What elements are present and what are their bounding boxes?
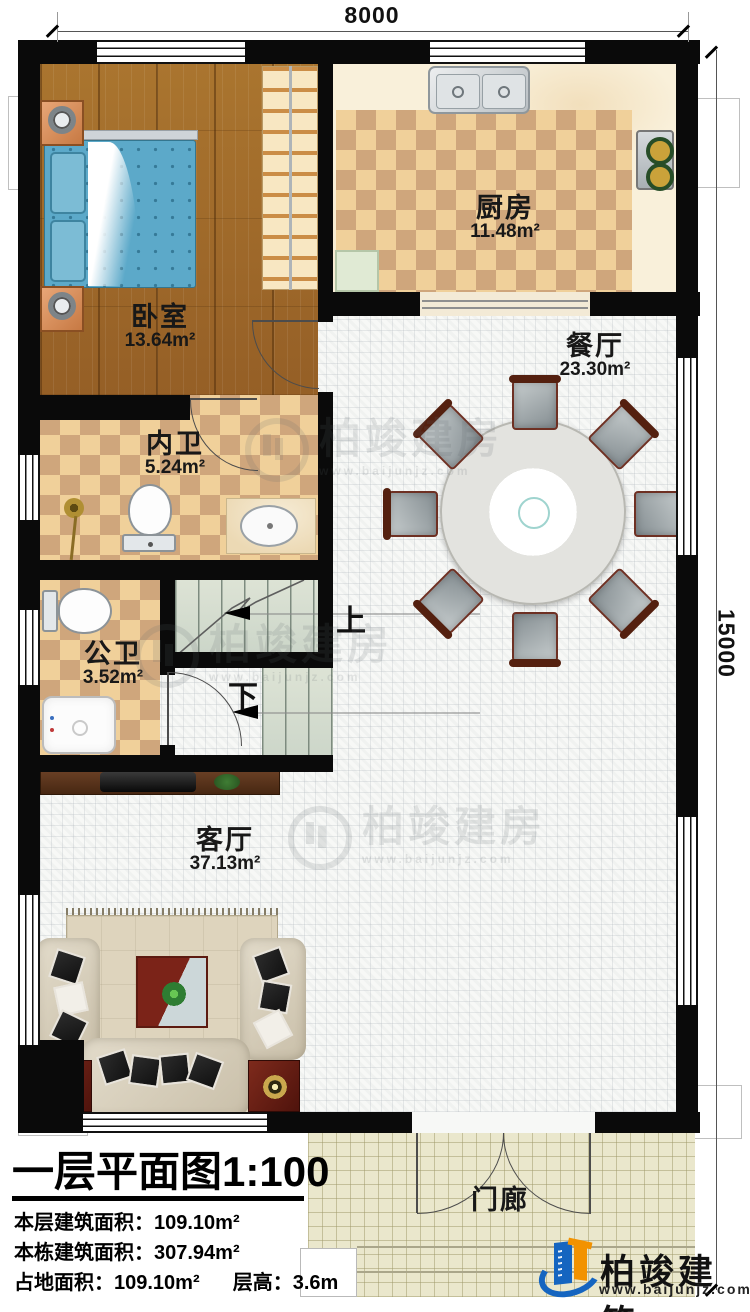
stat-value: 3.6m [293,1272,339,1294]
toilet-bowl [58,588,112,634]
room-area: 37.13m² [150,854,300,874]
nightstand-lamp [48,106,76,134]
wardrobe-rail [289,66,292,290]
wall-bath-dining [318,392,333,655]
coffee-table [136,956,208,1028]
room-name: 厨房 [430,194,580,222]
stat-value: 109.10m² [154,1212,240,1234]
stair-break-line [172,576,338,660]
dining-chair [512,612,558,662]
sofa-pillow [128,1054,162,1088]
rug-fringe [66,908,278,915]
side-table [248,1060,300,1112]
stat-label: 本层建筑面积： [14,1212,154,1234]
dining-window [676,358,698,555]
stat-label: 本栋建筑面积： [14,1242,154,1264]
stair-down-arrow-line [246,712,480,714]
nightstand-lamp [48,292,76,320]
stat-label: 层高： [233,1272,293,1294]
tv-decor-plant [214,774,240,790]
dining-chair [388,491,438,537]
room-area: 13.64m² [85,331,235,351]
dining-chair [512,380,558,430]
toilet-tank [42,590,58,632]
stat-value: 307.94m² [154,1242,240,1264]
inner-bath-window [18,455,40,520]
stat-building-area: 本栋建筑面积：307.94m² [14,1236,240,1265]
room-name: 餐厅 [520,332,670,360]
kitchen-cabinet [335,250,379,292]
room-name: 内卫 [100,430,250,458]
toilet-bowl [128,484,172,536]
dim-line-top [57,31,688,32]
bedroom-window [97,40,245,64]
sofa-pillow [258,980,293,1015]
room-area: 11.48m² [430,222,580,242]
room-name: 公卫 [38,640,188,668]
room-area: 3.52m² [38,668,188,688]
brand-name: 柏竣建筑 [600,1244,750,1312]
living-window-east [676,817,698,1005]
room-label-kitchen: 厨房 11.48m² [430,194,580,242]
public-bath-window [18,610,40,685]
floor-plan-canvas: 上 下 [0,0,750,1312]
wall-stair-south [18,755,333,772]
entry-opening [412,1112,595,1133]
room-area: 5.24m² [100,458,250,478]
plan-title-text: 一层平面图 [12,1148,222,1195]
toilet-tank [122,534,176,552]
tv [100,772,196,792]
dim-height-label: 15000 [713,594,740,694]
bath-sink [240,505,298,547]
washing-machine [42,696,116,754]
living-window-south [83,1112,267,1133]
wall-corner-pier [18,1040,84,1133]
stat-value: 109.10m² [114,1272,200,1294]
room-label-inner-bath: 内卫 5.24m² [100,430,250,478]
room-area: 23.30m² [520,360,670,380]
brand-url: www.baijunjz.com [599,1281,750,1297]
stat-label: 占地面积： [14,1272,114,1294]
plan-title: 一层平面图1:100 [12,1138,329,1199]
wall-bath-divider [18,560,333,580]
room-label-public-bath: 公卫 3.52m² [38,640,188,688]
room-name: 卧室 [85,303,235,331]
room-label-porch: 门廊 [430,1186,570,1214]
room-label-living: 客厅 37.13m² [150,826,300,874]
stair-up-label: 上 [336,596,366,640]
stair-up-arrow-head [224,606,250,620]
brand-logo-icon [538,1238,596,1298]
living-window-west [18,895,40,1045]
kitchen-pass-opening [420,292,590,316]
sofa-pillow [53,981,89,1017]
title-underline [12,1196,304,1201]
room-name: 客厅 [150,826,300,854]
kitchen-sink [428,66,530,114]
kitchen-window [430,40,585,64]
room-label-bedroom: 卧室 13.64m² [85,303,235,351]
stat-footprint-height: 占地面积：109.10m² 层高：3.6m [14,1266,338,1295]
wall-bedroom-kitchen [318,64,333,322]
kitchen-stove [636,130,674,190]
bed-pillow [50,152,86,214]
room-name: 门廊 [430,1186,570,1214]
plan-scale: 1:100 [222,1148,329,1195]
dim-width-label: 8000 [300,2,444,29]
wall-stair-mid [175,652,333,668]
room-label-dining: 餐厅 23.30m² [520,332,670,380]
wall-bedroom-south [18,395,190,420]
stat-floor-area: 本层建筑面积：109.10m² [14,1206,240,1235]
bed-pillow [50,220,86,282]
